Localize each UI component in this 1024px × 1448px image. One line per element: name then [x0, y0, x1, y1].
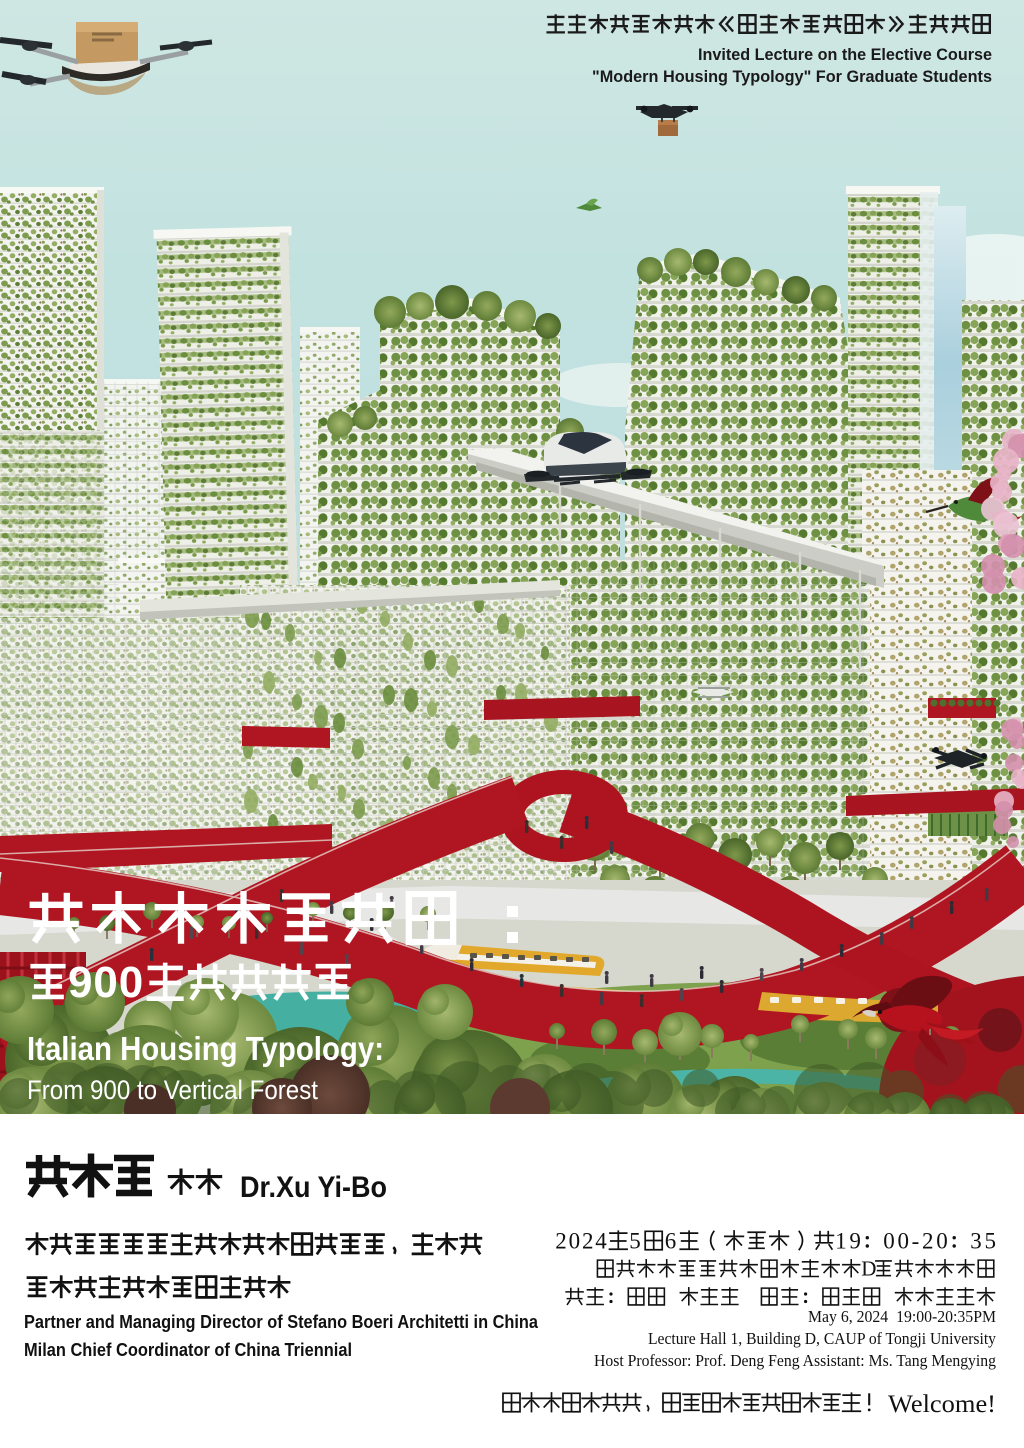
svg-text:900: 900: [68, 958, 143, 1007]
svg-text:2024: 2024: [555, 1228, 607, 1253]
svg-text:6: 6: [665, 1228, 677, 1253]
svg-text:May 6, 2024 19:00-20:35PM: May 6, 2024 19:00-20:35PM: [808, 1307, 996, 1326]
svg-text:Invited Lecture on the Electiv: Invited Lecture on the Elective Course: [698, 45, 992, 64]
svg-text:5: 5: [629, 1228, 641, 1253]
svg-text:Partner and Managing Director: Partner and Managing Director of Stefano…: [24, 1312, 539, 1332]
svg-text:Italian Housing Typology:: Italian Housing Typology:: [27, 1030, 384, 1067]
svg-text:Welcome!: Welcome!: [888, 1391, 996, 1418]
svg-text:00-20: 00-20: [883, 1228, 947, 1253]
svg-text:"Modern Housing Typology" For: "Modern Housing Typology" For Graduate S…: [592, 67, 992, 86]
svg-text:Milan Chief Coordinator of Chi: Milan Chief Coordinator of China Trienni…: [24, 1340, 352, 1360]
svg-text:Dr.Xu Yi-Bo: Dr.Xu Yi-Bo: [240, 1171, 387, 1204]
svg-text:D: D: [861, 1257, 876, 1281]
svg-text:Lecture Hall 1, Building D, CA: Lecture Hall 1, Building D, CAUP of Tong…: [648, 1329, 996, 1348]
svg-text:From 900 to Vertical Forest: From 900 to Vertical Forest: [27, 1075, 318, 1105]
svg-text:Host Professor: Prof. Deng Fen: Host Professor: Prof. Deng Feng Assistan…: [594, 1351, 996, 1370]
